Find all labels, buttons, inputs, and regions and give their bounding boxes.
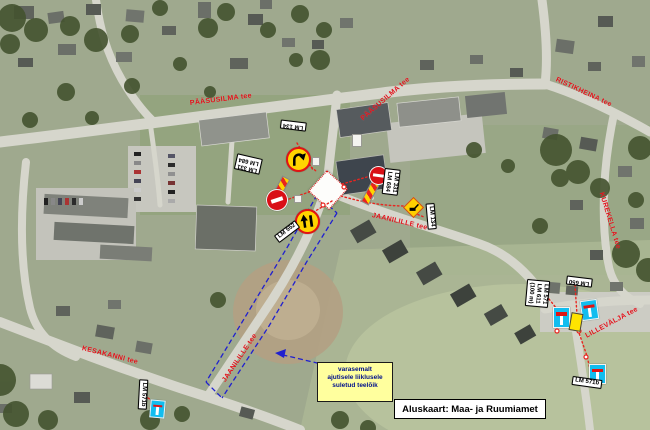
note-box: varasemalt ajutisele liiklusele suletud … bbox=[317, 362, 393, 402]
sign-plate: LM 571 LM 611 (100 m) bbox=[525, 279, 550, 308]
sign-post-markers bbox=[321, 185, 594, 383]
dead-end-sign-icon bbox=[553, 307, 570, 328]
sign-plate: LM 134 bbox=[280, 119, 307, 131]
sign-plate: LM 650 bbox=[566, 275, 593, 287]
work-area-diamond bbox=[308, 170, 348, 210]
sign-plate: LM 571b bbox=[138, 379, 149, 409]
detour-curve-sign-icon bbox=[286, 147, 311, 172]
plate-text: LM 571b bbox=[140, 382, 147, 406]
street-label-paasusilma-1: PÄÄSUSILMA tee bbox=[190, 92, 253, 107]
sign-back bbox=[312, 157, 320, 166]
dead-end-sign-icon bbox=[149, 399, 166, 418]
traffic-management-plan-map: LM 134 LM 331 LM 684 LM 331 LM 684 LM 13… bbox=[0, 0, 650, 430]
street-label-jaanilille-2: JAANILILLE tee bbox=[221, 333, 259, 384]
street-label-ristikheina: RISTIKHEINA tee bbox=[555, 76, 613, 108]
street-label-paasusilma-2: PÄÄSUSILMA tee bbox=[360, 76, 412, 122]
temporary-cover-panel bbox=[569, 312, 584, 332]
sign-plate: LM 331 LM 684 bbox=[382, 168, 401, 196]
plate-text: LM 134 bbox=[283, 122, 304, 130]
street-label-jaanilille-1: JAANILILLE tee bbox=[371, 212, 428, 232]
sign-back bbox=[294, 195, 302, 203]
parked-cars bbox=[44, 152, 175, 205]
buildings bbox=[0, 0, 645, 420]
pass-this-side-sign-icon bbox=[293, 207, 321, 235]
plate-text: LM 650 bbox=[569, 278, 590, 286]
plate-text: LM 552 bbox=[277, 223, 297, 240]
street-label-kesakanni: KESAKANNI tee bbox=[81, 345, 139, 366]
plate-text: LM 134 bbox=[428, 206, 436, 227]
sign-plate: LM 552 bbox=[274, 220, 300, 243]
plate-text: LM 571b bbox=[575, 377, 600, 386]
sign-back bbox=[352, 134, 362, 147]
basemap-caption: Aluskaart: Maa- ja Ruumiamet bbox=[394, 399, 546, 419]
sign-plate: LM 134 bbox=[426, 203, 437, 230]
sign-plate: LM 331 LM 684 bbox=[234, 153, 263, 175]
note-line: ajutisele liiklusele bbox=[320, 374, 390, 382]
note-line: varasemalt bbox=[320, 366, 390, 374]
street-label-kurekella: KUREKELLA tee bbox=[598, 191, 622, 249]
note-leader-arrowhead bbox=[275, 349, 286, 358]
note-line: suletud teelõik bbox=[320, 382, 390, 390]
no-entry-sign-icon bbox=[263, 186, 291, 214]
roadworks-sign-icon bbox=[403, 197, 424, 218]
